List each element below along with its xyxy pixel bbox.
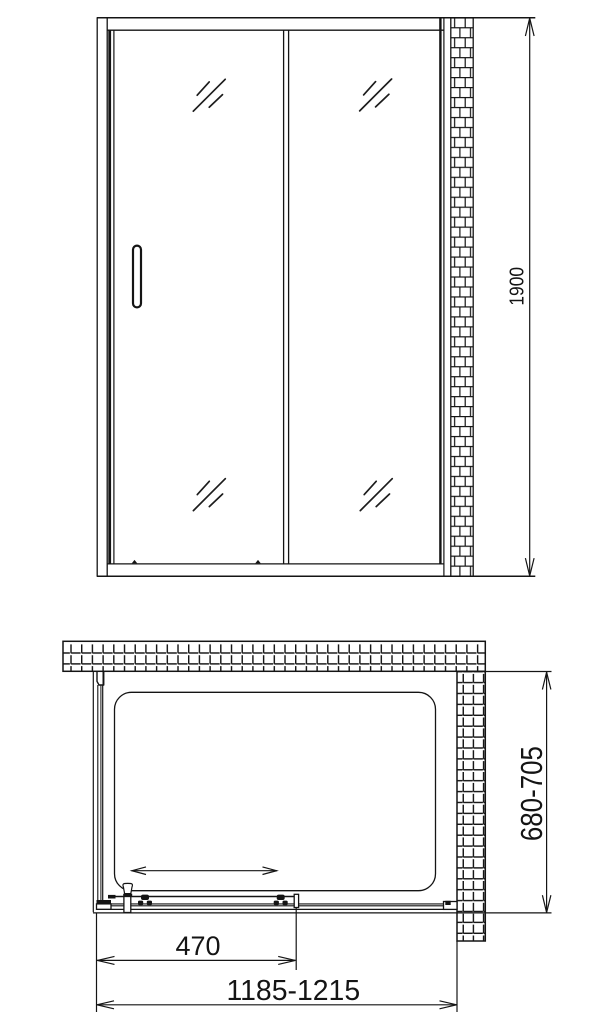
svg-text:470: 470 bbox=[175, 931, 220, 961]
svg-text:1900: 1900 bbox=[507, 267, 529, 306]
svg-text:680-705: 680-705 bbox=[514, 746, 549, 841]
svg-text:1185-1215: 1185-1215 bbox=[226, 975, 360, 1007]
